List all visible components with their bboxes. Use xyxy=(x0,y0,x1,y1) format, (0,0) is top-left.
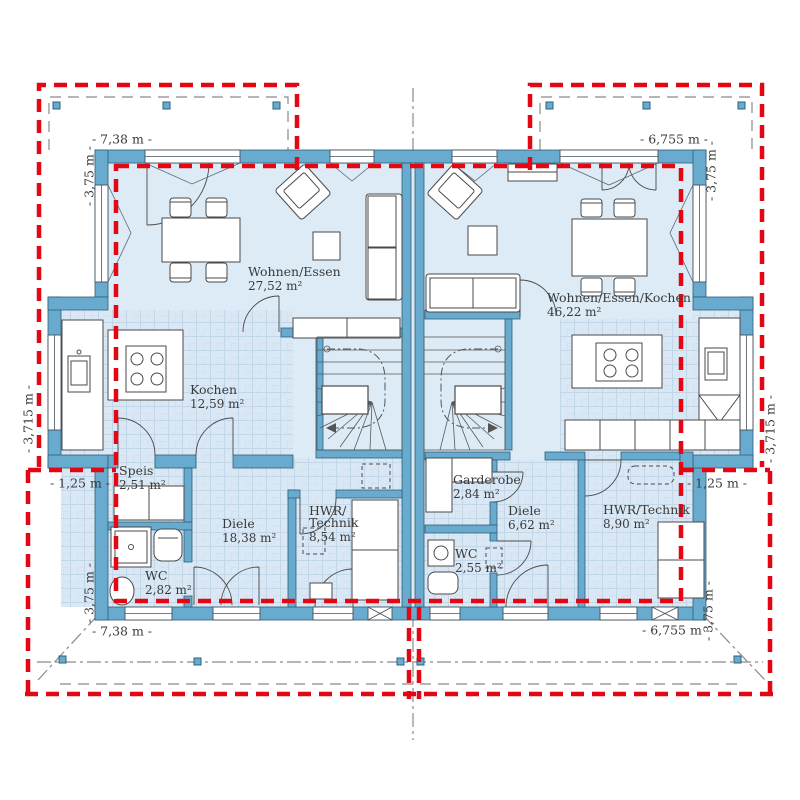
room-name: Speis xyxy=(119,463,153,478)
sofa-left xyxy=(366,194,402,300)
toilet-right xyxy=(428,572,458,594)
entry-door-opening xyxy=(503,607,548,620)
floor-plan-drawing xyxy=(0,0,800,800)
dim-bottom-left: - 7,38 m - xyxy=(92,624,152,639)
window xyxy=(560,150,658,163)
dim-left-bottom: - 3,75 m - xyxy=(82,563,97,623)
dim-right-middle: - 3,715 m - xyxy=(763,395,778,463)
room-label-hwr-left: HWR/ Technik 8,54 m² xyxy=(309,505,358,543)
sofa-right xyxy=(426,274,520,312)
room-label-wc-right: WC 2,55 m² xyxy=(455,548,502,574)
dim-left-lower: - 1,25 m - xyxy=(50,476,110,491)
dim-top-left: - 7,38 m - xyxy=(92,132,152,147)
room-area: 8,90 m² xyxy=(603,518,690,530)
room-area: 8,54 m² xyxy=(309,531,358,543)
window xyxy=(213,607,260,620)
corner-diagonal-left xyxy=(38,615,98,680)
dim-left-middle: - 3,715 m - xyxy=(21,385,36,453)
room-area: 2,55 m² xyxy=(455,562,502,574)
party-wall xyxy=(402,163,411,607)
entry-door-right xyxy=(652,607,678,620)
room-label-wohnen-essen-left: Wohnen/Essen 27,52 m² xyxy=(248,266,341,292)
window xyxy=(95,185,108,282)
toilet-left xyxy=(154,529,182,561)
room-label-hwr-right: HWR/Technik 8,90 m² xyxy=(603,504,690,530)
window xyxy=(330,150,374,163)
dim-right-bottom: - 3,75 m - xyxy=(701,581,716,641)
window xyxy=(125,607,172,620)
window xyxy=(740,335,753,430)
coffee-table-right xyxy=(468,226,497,255)
room-area: 2,82 m² xyxy=(145,584,192,596)
entry-door-left xyxy=(368,607,392,620)
room-label-wohnen-essen-kochen-right: Wohnen/Essen/Kochen 46,22 m² xyxy=(547,292,691,318)
room-name: Diele xyxy=(508,503,541,518)
room-name: Technik xyxy=(309,515,358,530)
cooktop-right xyxy=(596,343,642,381)
room-label-diele-right: Diele 6,62 m² xyxy=(508,505,555,531)
window xyxy=(430,607,460,620)
room-name: WC xyxy=(145,568,167,583)
room-name: WC xyxy=(455,546,477,561)
room-name: Garderobe xyxy=(453,472,521,487)
room-name: Diele xyxy=(222,516,255,531)
dim-top-right: - 6,755 m - xyxy=(640,132,708,147)
window xyxy=(313,607,353,620)
room-area: 12,59 m² xyxy=(190,398,244,410)
room-area: 2,51 m² xyxy=(119,479,166,491)
kitchen-island-right xyxy=(572,335,662,388)
window xyxy=(452,150,497,163)
window xyxy=(48,335,61,430)
window xyxy=(145,150,240,163)
dim-right-upper: - 3,75 m - xyxy=(704,141,719,201)
room-area: 2,84 m² xyxy=(453,488,521,500)
washbasin-right xyxy=(428,540,454,566)
room-label-wc-left: WC 2,82 m² xyxy=(145,570,192,596)
dim-right-lower: - 1,25 m - xyxy=(687,476,747,491)
room-name: Wohnen/Essen xyxy=(248,264,341,279)
room-area: 27,52 m² xyxy=(248,280,341,292)
room-name: Wohnen/Essen/Kochen xyxy=(547,290,691,305)
room-name: Kochen xyxy=(190,382,237,397)
room-area: 46,22 m² xyxy=(547,306,691,318)
house xyxy=(48,150,753,620)
floor-plan-canvas: Wohnen/Essen 27,52 m² Kochen 12,59 m² Sp… xyxy=(0,0,800,800)
coffee-table-left xyxy=(313,232,340,260)
cooktop-left xyxy=(126,346,166,392)
window xyxy=(600,607,637,620)
room-area: 18,38 m² xyxy=(222,532,276,544)
room-label-kochen: Kochen 12,59 m² xyxy=(190,384,244,410)
dim-left-upper: - 3,75 m - xyxy=(82,146,97,206)
room-name: HWR/Technik xyxy=(603,502,690,517)
room-area: 6,62 m² xyxy=(508,519,555,531)
room-label-speis: Speis 2,51 m² xyxy=(119,465,166,491)
sideboard-left xyxy=(293,318,400,338)
room-label-diele-left: Diele 18,38 m² xyxy=(222,518,276,544)
room-label-garderobe: Garderobe 2,84 m² xyxy=(453,474,521,500)
